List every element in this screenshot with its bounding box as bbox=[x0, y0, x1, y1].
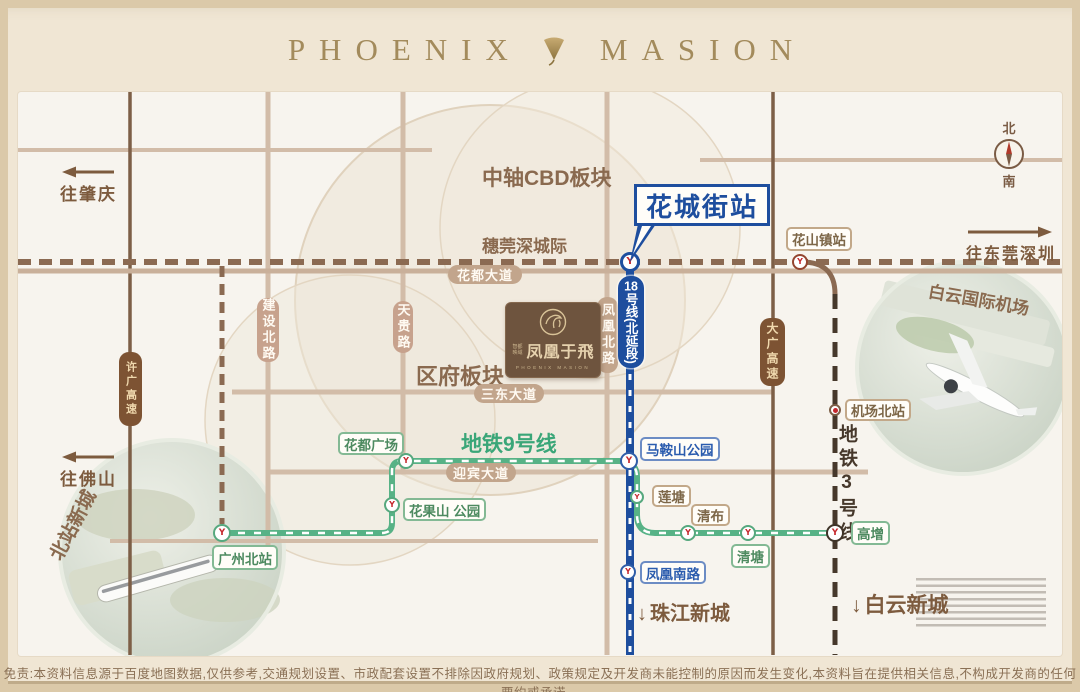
logo-brand-cn: 凤凰于飛 bbox=[526, 338, 594, 362]
station-marker-maanshan-stn: Y bbox=[620, 452, 638, 470]
road-pill-daguang-expwy: 大广高速 bbox=[760, 318, 785, 386]
title-word-right: MASION bbox=[586, 32, 806, 68]
area-label-text: 穗莞深城际 bbox=[482, 237, 567, 256]
map-panel: 往肇庆 往佛山 往东莞深圳 北 bbox=[18, 92, 1062, 656]
metro-logo-icon bbox=[833, 408, 838, 413]
callout-pointer bbox=[624, 224, 658, 264]
direction-foshan: 往佛山 bbox=[60, 451, 117, 490]
station-marker-jichangbei-stn bbox=[829, 404, 841, 416]
road-pill-yingbin-avenue: 迎宾大道 bbox=[446, 463, 516, 482]
left-arrow-icon bbox=[60, 451, 116, 463]
metro-logo-icon: Y bbox=[797, 258, 803, 266]
left-arrow-icon bbox=[60, 166, 116, 178]
area-label-text: 中轴CBD板块 bbox=[482, 167, 612, 190]
metro-logo-icon: Y bbox=[832, 529, 839, 538]
project-logo: 智都映域 凤凰于飛 PHOENIX MASION bbox=[505, 302, 601, 378]
logo-brand-small: 智都映域 bbox=[511, 344, 523, 356]
station-label-qingbu: 清布 bbox=[691, 504, 730, 526]
line18-number: 18 bbox=[624, 280, 638, 293]
right-arrow-icon bbox=[966, 226, 1054, 238]
area-label-suiguanshen: 穗莞深城际 bbox=[482, 232, 567, 257]
compass: 北 南 bbox=[992, 118, 1026, 190]
station-marker-huaguoshan-stn: Y bbox=[384, 497, 400, 513]
down-arrow-icon: ↓ bbox=[851, 594, 862, 617]
direction-zhaoqing: 往肇庆 bbox=[60, 166, 117, 205]
station-marker-gaozeng-stn: Y bbox=[826, 524, 844, 542]
area-label-cbd-board: 中轴CBD板块 bbox=[482, 162, 612, 192]
compass-south-label: 南 bbox=[1002, 171, 1015, 190]
area-label-metro-line9: 地铁9号线 bbox=[461, 428, 557, 458]
phoenix-emblem-icon bbox=[538, 307, 568, 337]
metro-logo-icon: Y bbox=[745, 529, 751, 537]
station-label-liantang: 莲塘 bbox=[652, 485, 691, 507]
station-marker-huaduguangchang-stn: Y bbox=[398, 453, 414, 469]
station-label-huadu-square: 花都广场 bbox=[338, 432, 404, 455]
road-pill-tiangui-rd: 天贵路 bbox=[393, 301, 413, 353]
area-label-zhujiang-newtown: ↓珠江新城 bbox=[637, 597, 730, 626]
station-marker-guangzhoubei-stn: Y bbox=[213, 524, 231, 542]
road-pill-huadu-avenue: 花都大道 bbox=[448, 265, 522, 284]
metro-logo-icon: Y bbox=[389, 501, 395, 509]
station-marker-huashanzhen-stn: Y bbox=[792, 254, 808, 270]
direction-dongguan-shenzhen: 往东莞深圳 bbox=[966, 226, 1056, 264]
station-label-fenghuang-south-rd: 凤凰南路 bbox=[640, 561, 706, 584]
huachengjie-station-callout: 花城街站 bbox=[634, 184, 770, 226]
area-label-baiyun-newtown: ↓白云新城 bbox=[851, 589, 949, 619]
metro-logo-icon: Y bbox=[219, 529, 226, 538]
area-label-text: 北站新城 bbox=[47, 487, 101, 564]
road-pill-jianshe-north-rd: 建设北路 bbox=[257, 298, 279, 362]
road-pill-xuguang-expwy: 许广高速 bbox=[119, 352, 142, 426]
station-label-guangzhou-north: 广州北站 bbox=[212, 545, 278, 570]
compass-north-label: 北 bbox=[1002, 118, 1015, 137]
station-marker-liantang-stn: Y bbox=[630, 490, 644, 504]
area-label-baiyun-airport: 白云国际机场 bbox=[927, 277, 1032, 319]
station-label-huashanzhen: 花山镇站 bbox=[786, 227, 852, 251]
direction-label: 往佛山 bbox=[60, 465, 117, 490]
poster-canvas: PHOENIX MASION bbox=[0, 0, 1080, 692]
metro-logo-icon: Y bbox=[625, 568, 631, 576]
poster-title: PHOENIX MASION bbox=[0, 32, 1080, 68]
area-label-beizhan-newtown: 北站新城 bbox=[42, 485, 102, 565]
road-pill-sandong-avenue: 三东大道 bbox=[474, 384, 544, 403]
area-label-text: 白云国际机场 bbox=[927, 282, 1031, 318]
station-marker-qingbu-stn: Y bbox=[680, 525, 696, 541]
station-label-jichangbei: 机场北站 bbox=[845, 399, 911, 421]
metro-logo-icon: Y bbox=[634, 494, 639, 501]
ginkgo-fan-icon bbox=[536, 34, 572, 66]
down-arrow-icon: ↓ bbox=[637, 603, 647, 625]
metro-logo-icon: Y bbox=[685, 529, 691, 537]
station-marker-fenghuangnan-stn: Y bbox=[620, 564, 636, 580]
direction-label: 往肇庆 bbox=[60, 180, 117, 205]
line18-name: 号线(北延段) bbox=[622, 293, 641, 364]
metro-logo-icon: Y bbox=[626, 457, 633, 466]
area-label-text: 地铁9号线 bbox=[461, 433, 557, 456]
station-label-gaozeng: 高增 bbox=[851, 521, 890, 545]
compass-icon bbox=[992, 137, 1026, 171]
station-label-huaguoshan-park: 花果山 公园 bbox=[403, 498, 486, 521]
station-marker-qingtang-stn: Y bbox=[740, 525, 756, 541]
station-label-maanshan-park: 马鞍山公园 bbox=[640, 437, 720, 461]
direction-label: 往东莞深圳 bbox=[966, 240, 1056, 264]
logo-brand-en: PHOENIX MASION bbox=[516, 365, 590, 370]
disclaimer-text: 免责:本资料信息源于百度地图数据,仅供参考,交通规划设置、市政配套设置不排除因政… bbox=[0, 663, 1080, 692]
title-word-left: PHOENIX bbox=[274, 32, 522, 68]
area-label-text: 白云新城 bbox=[865, 594, 949, 617]
line18-badge: 18号线(北延段) bbox=[618, 276, 644, 368]
map-overlay: 往肇庆 往佛山 往东莞深圳 北 bbox=[18, 92, 1062, 656]
metro-logo-icon: Y bbox=[403, 457, 409, 465]
station-label-qingtang: 清塘 bbox=[731, 544, 770, 568]
area-label-text: 珠江新城 bbox=[650, 603, 730, 625]
